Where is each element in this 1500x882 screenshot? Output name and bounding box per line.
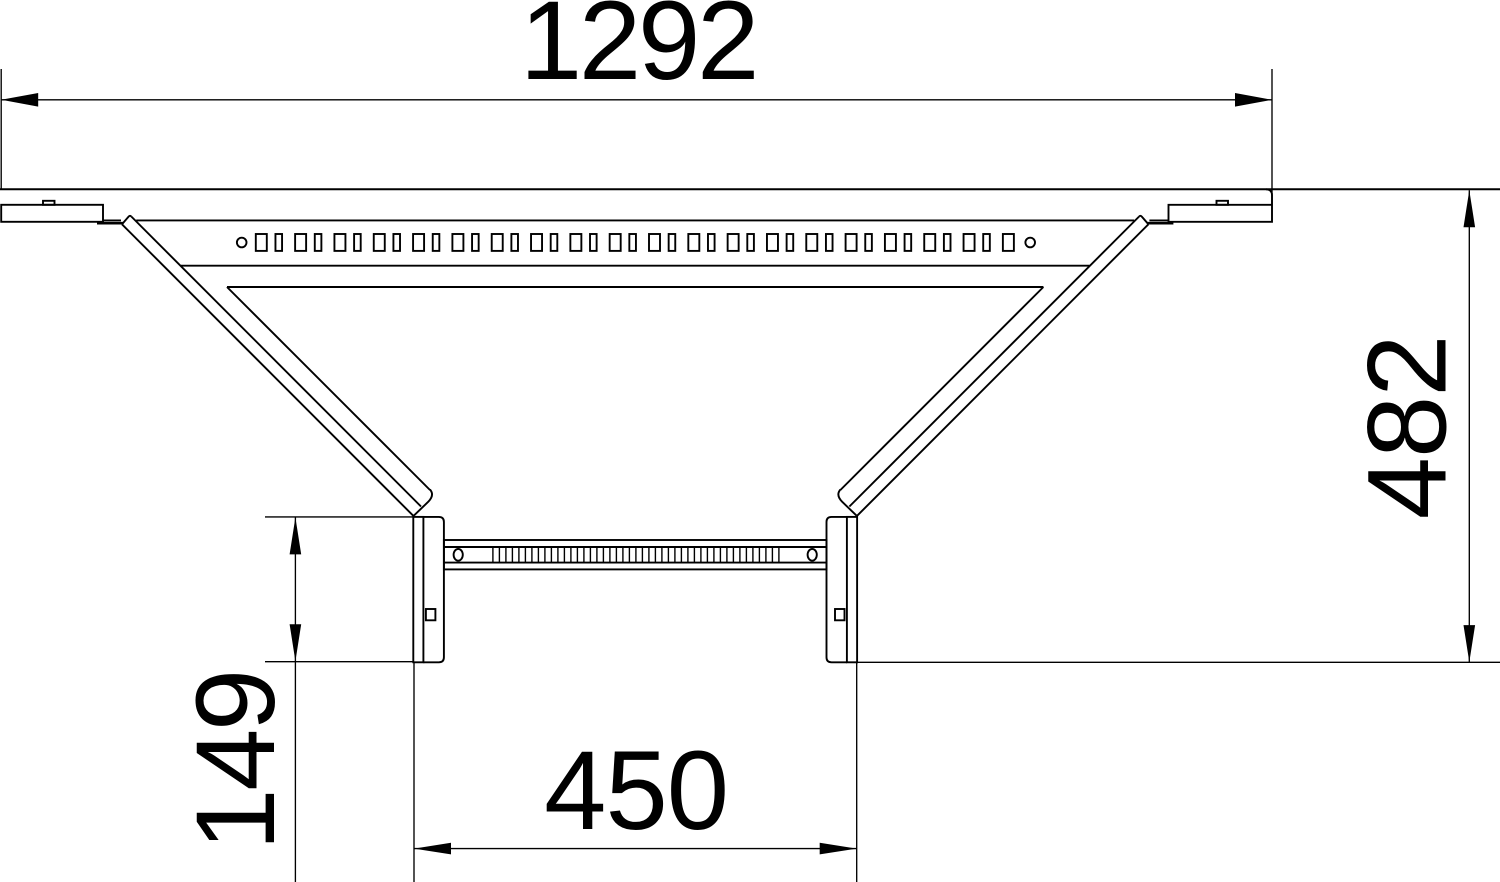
svg-text:1292: 1292 <box>520 0 756 103</box>
svg-text:482: 482 <box>1345 335 1470 519</box>
svg-text:149: 149 <box>173 671 298 850</box>
svg-text:450: 450 <box>544 728 728 853</box>
